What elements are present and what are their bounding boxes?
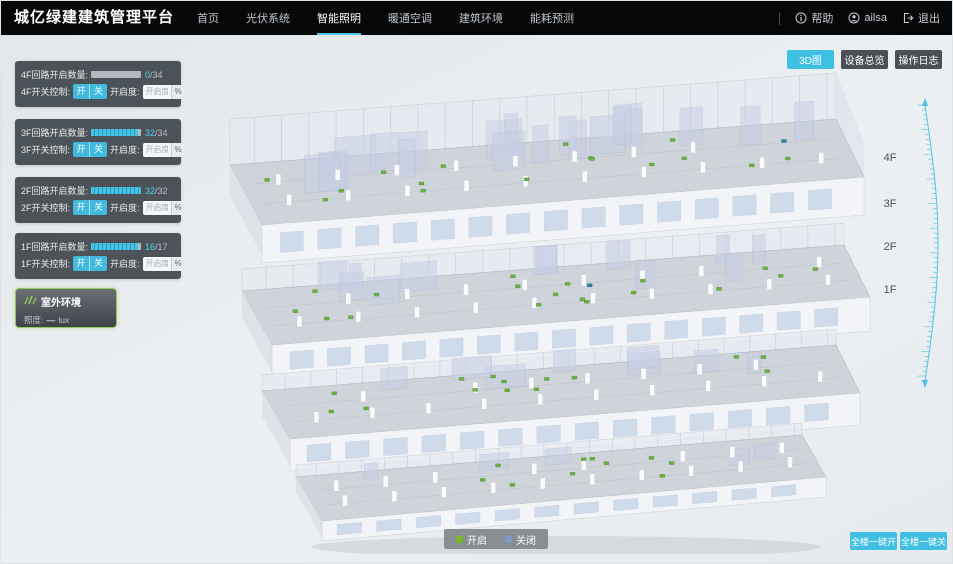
- light-marker-on[interactable]: [590, 157, 595, 160]
- operation-log-button[interactable]: 操作日志: [895, 50, 942, 69]
- all-off-button[interactable]: 全楼一键关: [900, 532, 947, 550]
- switch-control-label: 2F开关控制:: [21, 201, 70, 214]
- light-marker-on[interactable]: [763, 267, 768, 270]
- light-marker-on[interactable]: [660, 474, 665, 477]
- light-marker-on[interactable]: [480, 478, 485, 481]
- floor-off-button[interactable]: 关: [90, 142, 107, 157]
- dim-input-group: %: [143, 143, 185, 157]
- user-icon: [848, 12, 860, 24]
- switch-group: 开 关: [73, 200, 107, 215]
- light-marker-on[interactable]: [323, 198, 328, 201]
- light-marker-on[interactable]: [293, 310, 298, 313]
- dim-level-label: 开启度:: [110, 257, 140, 270]
- light-marker-on[interactable]: [502, 380, 507, 383]
- nav-item-pv-system[interactable]: 光伏系统: [246, 1, 290, 35]
- floor-scale-2f[interactable]: 2F: [877, 241, 903, 253]
- light-marker-on[interactable]: [669, 462, 674, 465]
- dim-input-group: %: [143, 85, 185, 99]
- light-marker-on[interactable]: [381, 171, 386, 174]
- light-marker-on[interactable]: [584, 300, 589, 303]
- circuit-progress-bar: [91, 187, 141, 194]
- illuminance-label: 照度:: [24, 314, 43, 326]
- light-marker-on[interactable]: [749, 164, 754, 167]
- dim-input-group: %: [143, 201, 185, 215]
- light-marker-on[interactable]: [364, 407, 369, 410]
- floor-on-button[interactable]: 开: [73, 84, 90, 99]
- light-marker-on[interactable]: [563, 143, 568, 146]
- dim-level-label: 开启度:: [110, 85, 140, 98]
- info-icon: [795, 12, 807, 24]
- nav-item-smart-lighting[interactable]: 智能照明: [317, 1, 361, 35]
- device-overview-button[interactable]: 设备总览: [841, 50, 888, 69]
- light-marker-on[interactable]: [553, 293, 558, 296]
- floor-on-button[interactable]: 开: [73, 200, 90, 215]
- light-marker-on[interactable]: [339, 189, 344, 192]
- legend-off-swatch: [505, 536, 512, 543]
- illuminance-value: —: [46, 315, 55, 325]
- floor-off-button[interactable]: 关: [90, 84, 107, 99]
- light-marker-on[interactable]: [544, 377, 549, 380]
- dim-input[interactable]: [143, 257, 171, 271]
- light-marker-on[interactable]: [491, 375, 496, 378]
- nav-item-building-env[interactable]: 建筑环境: [459, 1, 503, 35]
- circuit-count-label: 3F回路开启数量:: [21, 126, 88, 139]
- light-marker-on[interactable]: [785, 157, 790, 160]
- light-marker-on[interactable]: [374, 293, 379, 296]
- circuit-progress-bar: [91, 243, 141, 250]
- light-marker-on[interactable]: [324, 317, 329, 320]
- light-marker-on[interactable]: [778, 274, 783, 277]
- switch-control-label: 3F开关控制:: [21, 143, 70, 156]
- light-marker-on[interactable]: [565, 282, 570, 285]
- light-marker-on[interactable]: [459, 377, 464, 380]
- light-status-legend: 开启 关闭: [444, 529, 548, 549]
- outdoor-env-title: 室外环境: [41, 294, 81, 309]
- all-on-button[interactable]: 全楼一键开: [850, 532, 897, 550]
- switch-control-label: 4F开关控制:: [21, 85, 70, 98]
- floor-panel-2f: 2F回路开启数量: 32/32 2F开关控制: 开 关 开启度: %: [15, 177, 181, 223]
- nav-item-hvac[interactable]: 暖通空调: [388, 1, 432, 35]
- light-marker-on[interactable]: [640, 279, 645, 282]
- view-3d-button[interactable]: 3D图: [787, 50, 834, 69]
- light-marker-on[interactable]: [631, 291, 636, 294]
- circuit-count-value: 0/34: [145, 70, 163, 80]
- light-marker-on[interactable]: [536, 303, 541, 306]
- circuit-count-label: 1F回路开启数量:: [21, 240, 88, 253]
- light-marker-on[interactable]: [313, 290, 318, 293]
- circuit-progress-bar: [91, 129, 141, 136]
- header-divider: [779, 12, 780, 25]
- floor-off-button[interactable]: 关: [90, 200, 107, 215]
- light-marker-on[interactable]: [717, 287, 722, 290]
- light-marker-on[interactable]: [348, 316, 353, 319]
- light-marker-on[interactable]: [534, 388, 539, 391]
- switch-group: 开 关: [73, 84, 107, 99]
- dim-unit-button[interactable]: %: [171, 201, 185, 215]
- light-marker-off[interactable]: [781, 140, 786, 143]
- light-marker-on[interactable]: [590, 457, 595, 460]
- dim-unit-button[interactable]: %: [171, 257, 185, 271]
- help-button[interactable]: 帮助: [795, 10, 833, 26]
- logout-button[interactable]: 退出: [902, 10, 940, 26]
- floor-panel-4f: 4F回路开启数量: 0/34 4F开关控制: 开 关 开启度: %: [15, 61, 181, 107]
- switch-group: 开 关: [73, 142, 107, 157]
- nav-item-energy[interactable]: 能耗预测: [530, 1, 574, 35]
- switch-control-label: 1F开关控制:: [21, 257, 70, 270]
- light-marker-on[interactable]: [329, 410, 334, 413]
- circuit-count-value: 32/34: [145, 128, 168, 138]
- floor-panel-1f: 1F回路开启数量: 16/17 1F开关控制: 开 关 开启度: %: [15, 233, 181, 279]
- light-marker-on[interactable]: [813, 268, 818, 271]
- circuit-count-label: 4F回路开启数量:: [21, 68, 88, 81]
- light-marker-on[interactable]: [682, 157, 687, 160]
- floor-panel-3f: 3F回路开启数量: 32/34 3F开关控制: 开 关 开启度: %: [15, 119, 181, 165]
- light-marker-on[interactable]: [421, 189, 426, 192]
- dim-input[interactable]: [143, 143, 171, 157]
- light-marker-on[interactable]: [265, 178, 270, 181]
- light-marker-on[interactable]: [441, 165, 446, 168]
- top-header: 城亿绿建建筑管理平台 首页 光伏系统 智能照明 暖通空调 建筑环境 能耗预测 帮…: [1, 1, 952, 35]
- light-marker-on[interactable]: [505, 389, 510, 392]
- user-menu[interactable]: ailsa: [848, 12, 887, 24]
- circuit-count-label: 2F回路开启数量:: [21, 184, 88, 197]
- light-marker-off[interactable]: [587, 284, 592, 287]
- dim-unit-button[interactable]: %: [171, 143, 185, 157]
- dim-level-label: 开启度:: [110, 143, 140, 156]
- light-marker-on[interactable]: [649, 456, 654, 459]
- light-marker-on[interactable]: [332, 392, 337, 395]
- light-marker-on[interactable]: [765, 370, 770, 373]
- light-marker-on[interactable]: [510, 275, 515, 278]
- header-actions: 帮助 ailsa 退出: [779, 1, 940, 35]
- circuit-count-value: 16/17: [145, 242, 168, 252]
- circuit-count-value: 32/32: [145, 186, 168, 196]
- legend-on-label: 开启: [467, 532, 487, 547]
- light-marker-on[interactable]: [570, 472, 575, 475]
- dim-input[interactable]: [143, 85, 171, 99]
- legend-off-label: 关闭: [516, 532, 536, 547]
- floor-scale-3f[interactable]: 3F: [877, 198, 903, 210]
- main-nav: 首页 光伏系统 智能照明 暖通空调 建筑环境 能耗预测: [197, 1, 574, 35]
- outdoor-env-icon: [24, 295, 37, 308]
- floor-scale-4f[interactable]: 4F: [877, 152, 903, 164]
- light-marker-on[interactable]: [515, 285, 520, 288]
- switch-group: 开 关: [73, 256, 107, 271]
- username-label: ailsa: [864, 12, 887, 24]
- legend-item-off: 关闭: [505, 532, 536, 547]
- floor-on-button[interactable]: 开: [73, 256, 90, 271]
- floor-off-button[interactable]: 关: [90, 256, 107, 271]
- light-marker-on[interactable]: [495, 464, 500, 467]
- light-marker-on[interactable]: [510, 483, 515, 486]
- outdoor-env-panel: 室外环境 照度: — lux: [15, 288, 117, 328]
- dim-input[interactable]: [143, 201, 171, 215]
- legend-item-on: 开启: [456, 532, 487, 547]
- dim-input-group: %: [143, 257, 185, 271]
- illuminance-unit: lux: [58, 315, 69, 325]
- light-marker-on[interactable]: [473, 388, 478, 391]
- light-marker-on[interactable]: [649, 163, 654, 166]
- circuit-progress-bar: [91, 71, 141, 78]
- light-marker-on[interactable]: [581, 458, 586, 461]
- app-title: 城亿绿建建筑管理平台: [14, 1, 174, 35]
- light-marker-on[interactable]: [604, 462, 609, 465]
- light-marker-on[interactable]: [734, 355, 739, 358]
- nav-item-home[interactable]: 首页: [197, 1, 219, 35]
- logout-icon: [902, 12, 914, 24]
- light-marker-on[interactable]: [572, 376, 577, 379]
- dim-unit-button[interactable]: %: [171, 85, 185, 99]
- light-marker-on[interactable]: [419, 182, 424, 185]
- logout-label: 退出: [918, 10, 940, 26]
- floor-ruler-scale: [906, 97, 946, 389]
- light-marker-on[interactable]: [761, 356, 766, 359]
- help-label: 帮助: [811, 10, 833, 26]
- legend-on-swatch: [456, 536, 463, 543]
- dim-level-label: 开启度:: [110, 201, 140, 214]
- building-3d-view[interactable]: [196, 39, 896, 554]
- light-marker-on[interactable]: [524, 178, 529, 181]
- floor-on-button[interactable]: 开: [73, 142, 90, 157]
- app-root: 城亿绿建建筑管理平台 首页 光伏系统 智能照明 暖通空调 建筑环境 能耗预测 帮…: [0, 0, 953, 564]
- light-marker-on[interactable]: [670, 139, 675, 142]
- floor-scale-1f[interactable]: 1F: [877, 284, 903, 296]
